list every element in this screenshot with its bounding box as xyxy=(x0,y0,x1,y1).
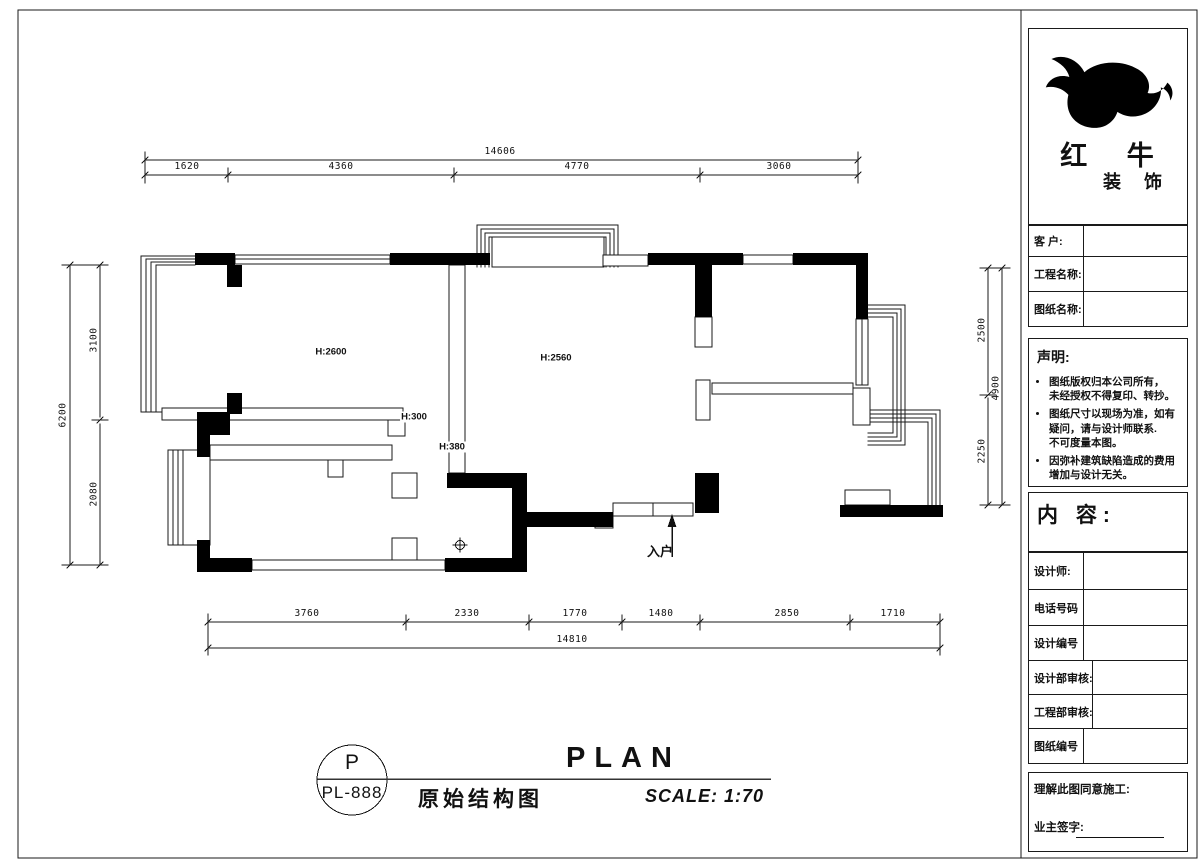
dim-left-total: 6200 xyxy=(58,403,69,428)
dim-right-total: 4900 xyxy=(991,376,1002,401)
dim-top-total: 14606 xyxy=(484,146,515,157)
field-label: 图纸编号 xyxy=(1029,729,1084,763)
drawing-title-cn: 原始结构图 xyxy=(418,783,543,813)
room-height-label: H:380 xyxy=(438,442,466,453)
dim-bottom-6: 1710 xyxy=(881,608,906,619)
field-label: 电话号码 xyxy=(1029,590,1084,625)
field-design-dept-review: 设计部审核: xyxy=(1028,660,1188,695)
dim-bottom-2: 2330 xyxy=(455,608,480,619)
drawing-scale: SCALE: 1:70 xyxy=(645,786,764,807)
field-label: 设计师: xyxy=(1029,553,1084,589)
brand-subname: 装 饰 xyxy=(1103,170,1171,195)
dim-left-2: 2080 xyxy=(89,482,100,507)
floor-plan-svg xyxy=(0,0,1200,868)
field-customer: 客 户: xyxy=(1028,225,1188,257)
dim-bottom-4: 1480 xyxy=(649,608,674,619)
field-value[interactable] xyxy=(1084,257,1187,291)
dim-top-4: 3060 xyxy=(767,161,792,172)
owner-signature-label: 业主签字: xyxy=(1034,819,1187,835)
field-value[interactable] xyxy=(1084,553,1187,589)
dim-bottom-1: 3760 xyxy=(295,608,320,619)
dim-bottom-5: 2850 xyxy=(775,608,800,619)
field-label: 图纸名称: xyxy=(1029,292,1084,326)
signature-line[interactable] xyxy=(1076,837,1164,838)
approval-box: 理解此图同意施工: 业主签字: xyxy=(1028,772,1188,852)
red-bull-logo xyxy=(1042,43,1174,143)
drawing-code-number: PL-888 xyxy=(322,783,383,803)
dim-right-1: 2500 xyxy=(977,318,988,343)
brand-name: 红 牛 xyxy=(1060,143,1170,170)
field-value[interactable] xyxy=(1093,661,1187,694)
drain-symbol-icon xyxy=(453,538,467,552)
entry-label: 入户 xyxy=(647,541,673,560)
field-value[interactable] xyxy=(1084,626,1187,660)
drawing-code-letter: P xyxy=(345,751,359,775)
dim-left-1: 3100 xyxy=(89,328,100,353)
dim-bottom-3: 1770 xyxy=(563,608,588,619)
statement-bullet: 图纸版权归本公司所有， 未经授权不得复印、转抄。 xyxy=(1049,375,1181,403)
field-project-name: 工程名称: xyxy=(1028,256,1188,292)
statement-title: 声明: xyxy=(1037,347,1181,367)
field-label: 工程部审核: xyxy=(1029,695,1093,728)
field-value[interactable] xyxy=(1084,729,1187,763)
room-height-label: H:2560 xyxy=(539,353,572,364)
field-value[interactable] xyxy=(1084,590,1187,625)
field-value[interactable] xyxy=(1084,226,1187,256)
statement-bullet: 图纸尺寸以现场为准，如有 疑问，请与设计师联系. 不可度量本图。 xyxy=(1049,407,1181,450)
dim-top-2: 4360 xyxy=(329,161,354,172)
field-label: 工程名称: xyxy=(1029,257,1084,291)
dim-bottom-total: 14810 xyxy=(556,634,587,645)
statement-box: 声明: 图纸版权归本公司所有， 未经授权不得复印、转抄。 图纸尺寸以现场为准，如… xyxy=(1028,338,1188,487)
field-label: 设计编号 xyxy=(1029,626,1084,660)
page-border xyxy=(18,10,1197,858)
dim-top-3: 4770 xyxy=(565,161,590,172)
field-drawing-number: 图纸编号 xyxy=(1028,728,1188,764)
content-box: 内 容: xyxy=(1028,492,1188,552)
field-value[interactable] xyxy=(1093,695,1187,728)
field-label: 设计部审核: xyxy=(1029,661,1093,694)
title-block: 红 牛 装 饰 客 户: 工程名称: 图纸名称: 声明: 图纸版权归本公司所有，… xyxy=(1028,28,1188,852)
statement-bullet: 因弥补建筑缺陷造成的费用 增加与设计无关。 xyxy=(1049,454,1181,482)
field-engineering-dept-review: 工程部审核: xyxy=(1028,694,1188,729)
dim-right-2: 2250 xyxy=(977,439,988,464)
brand-cell: 红 牛 装 饰 xyxy=(1028,28,1188,225)
drawing-title-en: PLAN xyxy=(566,742,681,775)
content-label: 内 容: xyxy=(1037,504,1116,527)
cad-sheet: { "brand": { "name_line1": "红 牛", "name_… xyxy=(0,0,1200,868)
field-designer: 设计师: xyxy=(1028,552,1188,590)
field-value[interactable] xyxy=(1084,292,1187,326)
room-height-label: H:2600 xyxy=(314,347,347,358)
field-drawing-name: 图纸名称: xyxy=(1028,291,1188,327)
dim-top-1: 1620 xyxy=(175,161,200,172)
field-phone: 电话号码 xyxy=(1028,589,1188,626)
approval-statement: 理解此图同意施工: xyxy=(1034,781,1187,797)
field-design-number: 设计编号 xyxy=(1028,625,1188,661)
room-height-label: H:300 xyxy=(400,412,428,423)
field-label: 客 户: xyxy=(1029,226,1084,256)
